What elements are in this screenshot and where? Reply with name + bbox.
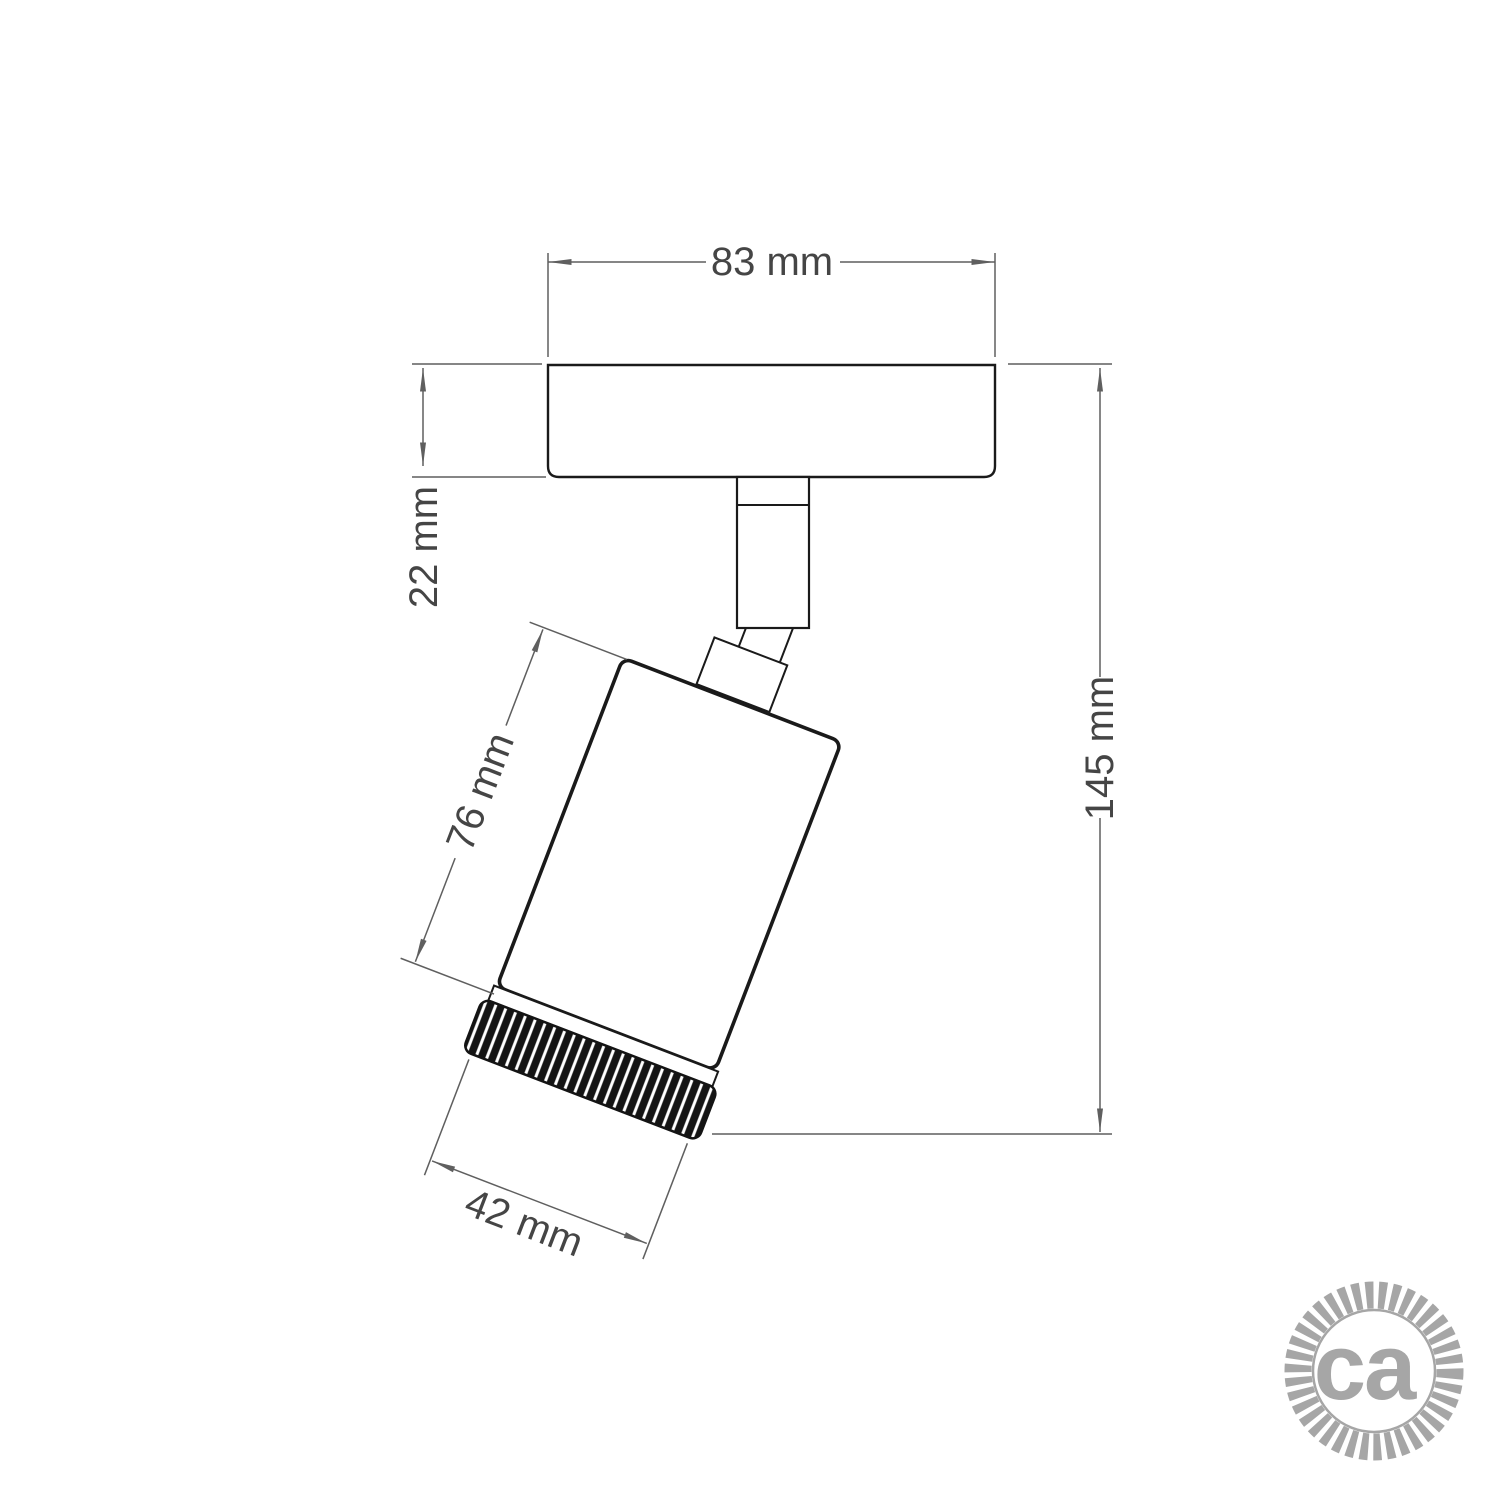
ceiling-plate: [548, 365, 995, 477]
label-overall-height: 145 mm: [1078, 676, 1122, 821]
label-plate-width: 83 mm: [711, 240, 833, 284]
stem: [737, 477, 809, 628]
technical-drawing-page: 83 mm 22 mm 145 mm 76 mm 42 mm ca: [0, 0, 1500, 1500]
dimension-plate-thickness: [412, 364, 546, 477]
fixture-drawing: [463, 365, 995, 1141]
spotlight-dimension-diagram: 83 mm 22 mm 145 mm 76 mm 42 mm ca: [0, 0, 1500, 1500]
extension-line: [530, 622, 627, 659]
logo-text: ca: [1314, 1314, 1417, 1419]
label-body-diameter: 42 mm: [459, 1181, 589, 1266]
label-plate-thickness: 22 mm: [402, 486, 446, 608]
extension-line: [643, 1143, 687, 1259]
label-body-length: 76 mm: [438, 727, 523, 857]
dimension-line: [415, 858, 455, 962]
brand-logo: ca: [1298, 1295, 1450, 1447]
extension-line: [401, 958, 494, 994]
dimension-line: [506, 629, 543, 725]
extension-line: [424, 1059, 468, 1175]
